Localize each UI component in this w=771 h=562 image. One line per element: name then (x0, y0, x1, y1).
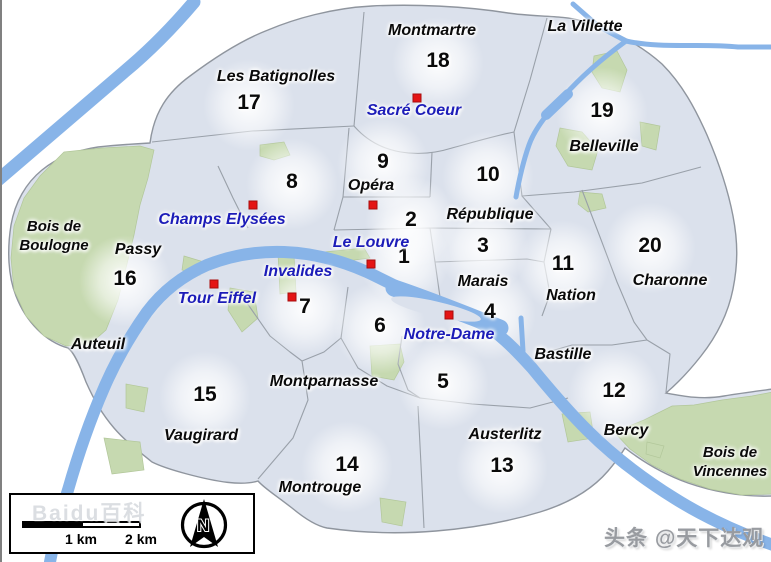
arrondissement-number: 17 (237, 91, 260, 115)
compass-n-label: N (197, 516, 209, 535)
district-name-label: Montrouge (279, 479, 362, 497)
landmark-marker (413, 94, 422, 103)
district-name-label: La Villette (548, 18, 623, 36)
landmark-marker (288, 293, 297, 302)
landmark-label: Invalides (264, 263, 332, 281)
watermark-toutiao: 头条 @天下达观 (604, 522, 764, 552)
landmark-marker (367, 260, 376, 269)
arrondissement-number: 16 (113, 267, 136, 291)
district-name-label: Montmartre (388, 22, 476, 40)
arrondissement-number: 9 (377, 150, 389, 174)
district-name-label: Opéra (348, 177, 394, 195)
arrondissement-number: 20 (638, 234, 661, 258)
landmark-marker (445, 311, 454, 320)
district-name-label: Les Batignolles (217, 68, 335, 86)
arrondissement-number: 2 (405, 208, 417, 232)
arrondissement-number: 4 (484, 300, 496, 324)
arrondissement-number: 19 (590, 99, 613, 123)
landmark-label: Sacré Coeur (367, 102, 461, 120)
arrondissement-number: 13 (490, 454, 513, 478)
compass-icon: N (175, 497, 233, 555)
landmark-label: Tour Eiffel (178, 290, 256, 308)
park-name-label: Bois deVincennes (693, 443, 767, 481)
landmark-marker (210, 280, 219, 289)
arrondissement-number: 7 (299, 295, 311, 319)
watermark-baidu: Baidu百科 (32, 497, 146, 527)
district-name-label: Marais (458, 273, 509, 291)
arrondissement-number: 14 (335, 453, 358, 477)
arrondissement-number: 15 (193, 383, 216, 407)
map-labels: 1234567891011121314151617181920Montmartr… (2, 0, 771, 562)
arrondissement-number: 8 (286, 170, 298, 194)
landmark-label: Le Louvre (333, 234, 409, 252)
arrondissement-number: 12 (602, 379, 625, 403)
district-name-label: Vaugirard (164, 427, 238, 445)
arrondissement-number: 6 (374, 314, 386, 338)
district-name-label: Nation (546, 287, 596, 305)
arrondissement-number: 3 (477, 234, 489, 258)
arrondissement-number: 10 (476, 163, 499, 187)
district-name-label: République (446, 206, 533, 224)
landmark-marker (249, 201, 258, 210)
district-name-label: Auteuil (71, 336, 125, 354)
landmark-label: Notre-Dame (404, 326, 495, 344)
district-name-label: Belleville (569, 138, 638, 156)
district-name-label: Charonne (633, 272, 708, 290)
arrondissement-number: 11 (552, 252, 574, 276)
district-name-label: Austerlitz (469, 426, 542, 444)
paris-map: 1234567891011121314151617181920Montmartr… (0, 0, 771, 562)
scale-label-2km: 2 km (125, 531, 157, 547)
district-name-label: Passy (115, 241, 161, 259)
district-name-label: Montparnasse (270, 373, 378, 391)
landmark-label: Champs Elysées (158, 211, 285, 229)
district-name-label: Bastille (535, 346, 592, 364)
scale-label-1km: 1 km (65, 531, 97, 547)
district-name-label: Bercy (604, 422, 648, 440)
arrondissement-number: 5 (437, 370, 449, 394)
landmark-marker (369, 201, 378, 210)
park-name-label: Bois deBoulogne (19, 217, 88, 255)
arrondissement-number: 18 (426, 49, 449, 73)
